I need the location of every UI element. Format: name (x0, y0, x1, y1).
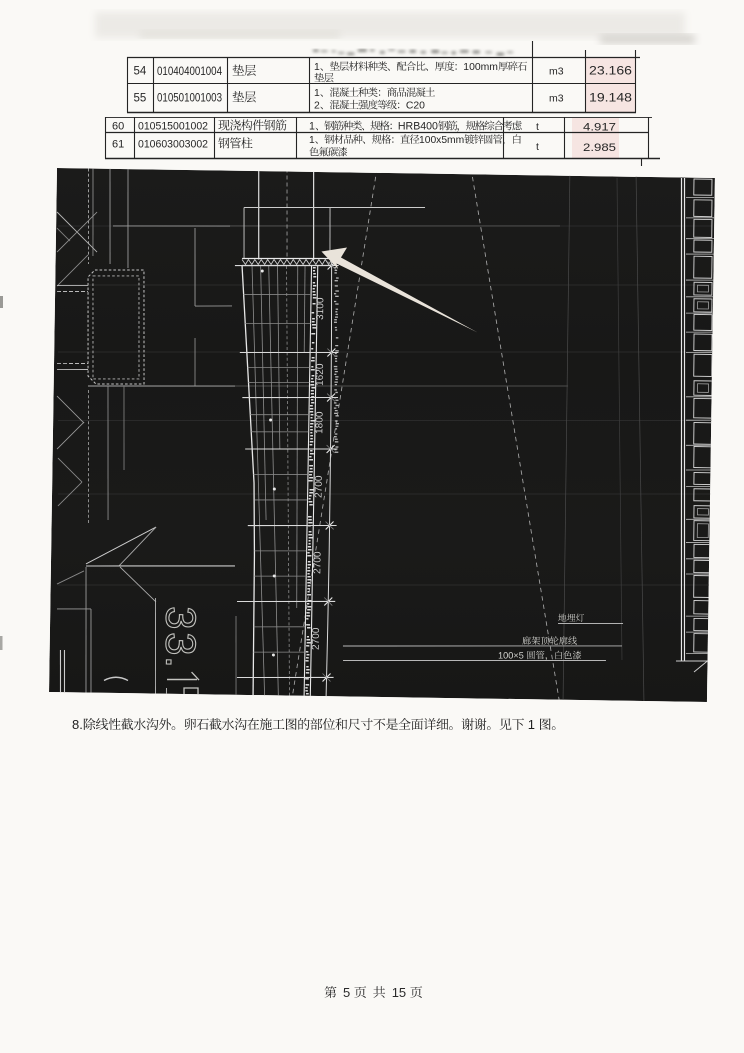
svg-text:55: 55 (134, 93, 147, 105)
svg-text:2: 2 (314, 101, 320, 112)
svg-text:54: 54 (134, 66, 147, 78)
svg-text:100mm: 100mm (463, 62, 498, 73)
svg-text:100x5mm: 100x5mm (419, 135, 464, 146)
svg-text:m3: m3 (549, 66, 564, 78)
svg-text:1: 1 (528, 717, 535, 732)
svg-text:t: t (536, 141, 539, 153)
svg-text:010515001002: 010515001002 (138, 121, 208, 133)
svg-text:1: 1 (314, 62, 320, 73)
svg-text:C20: C20 (406, 101, 425, 112)
svg-text:61: 61 (112, 139, 124, 151)
svg-text:60: 60 (112, 121, 124, 133)
svg-text:19.148: 19.148 (589, 93, 632, 105)
svg-text:1: 1 (309, 121, 315, 133)
svg-text:23.166: 23.166 (589, 66, 632, 78)
svg-text:t: t (536, 121, 539, 133)
svg-text:1: 1 (309, 135, 315, 146)
svg-text:HRB400: HRB400 (398, 121, 438, 133)
svg-text:8.: 8. (72, 717, 83, 732)
svg-text:2.985: 2.985 (583, 142, 616, 154)
svg-text:010603003002: 010603003002 (138, 139, 208, 151)
svg-text:15: 15 (392, 985, 406, 1000)
svg-text:5: 5 (343, 985, 350, 1000)
svg-text:010404001004: 010404001004 (157, 66, 223, 78)
svg-text:4.917: 4.917 (583, 122, 616, 134)
svg-text:m3: m3 (549, 93, 564, 105)
svg-text:010501001003: 010501001003 (157, 93, 222, 105)
svg-text:1: 1 (314, 88, 320, 99)
